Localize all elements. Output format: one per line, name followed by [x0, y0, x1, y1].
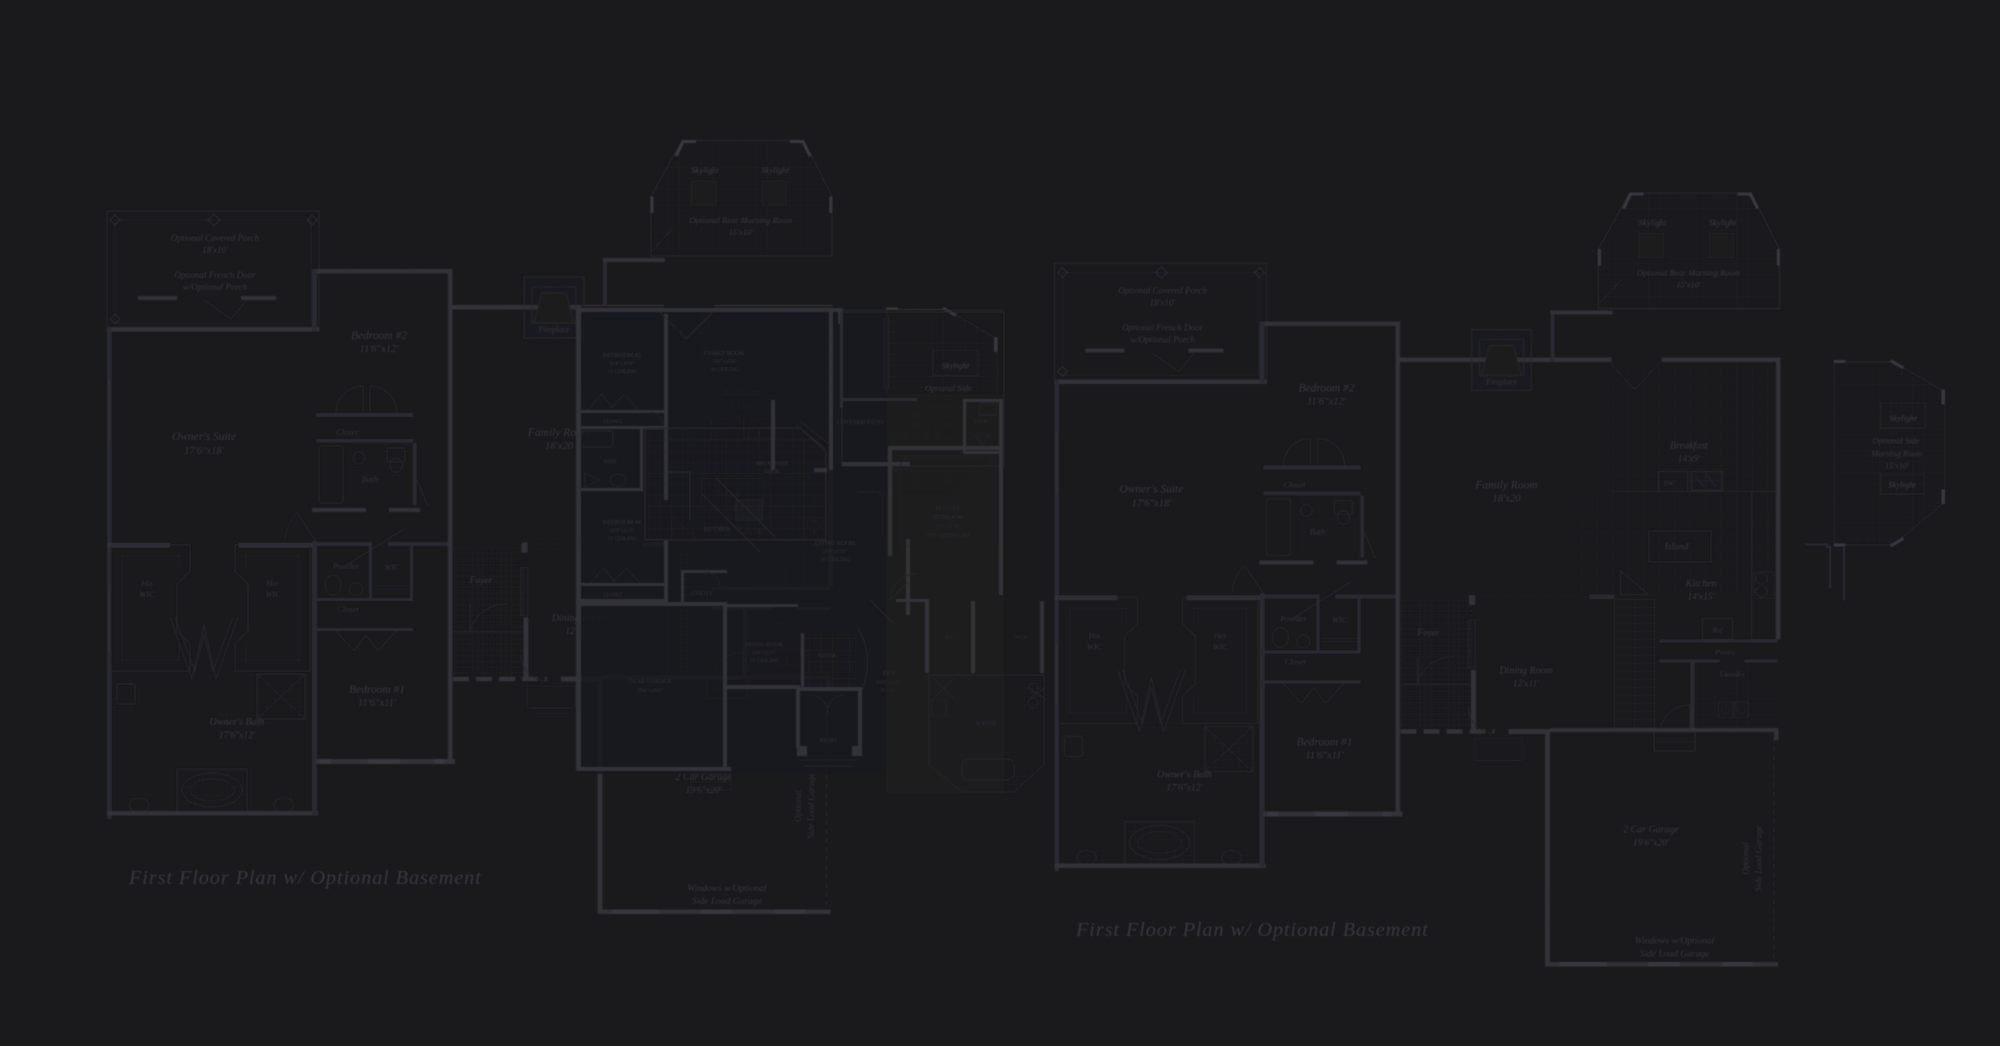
svg-text:BATH: BATH	[974, 420, 987, 425]
svg-text:FAMILY ROOM: FAMILY ROOM	[703, 351, 745, 357]
svg-text:WIC: WIC	[384, 562, 400, 572]
svg-text:LIVING ROOM: LIVING ROOM	[815, 541, 856, 547]
svg-text:Optional Rear Morning Room: Optional Rear Morning Room	[690, 215, 793, 225]
svg-text:Optional Side: Optional Side	[925, 383, 972, 393]
svg-text:11' CEILING: 11' CEILING	[607, 536, 637, 542]
svg-text:10'6"x12'0": 10'6"x12'0"	[751, 650, 777, 656]
svg-text:Side Load Garage: Side Load Garage	[692, 897, 762, 907]
svg-text:BEDROOM #4: BEDROOM #4	[603, 520, 641, 526]
svg-text:DEN: DEN	[883, 671, 896, 677]
svg-text:Owner's Suite: Owner's Suite	[172, 431, 236, 443]
svg-text:Her: Her	[265, 578, 280, 588]
svg-text:DINING ROOM: DINING ROOM	[745, 642, 783, 648]
svg-text:10' CEILING: 10' CEILING	[820, 557, 850, 563]
svg-text:Bath: Bath	[362, 474, 378, 484]
svg-text:19'6"x29'6": 19'6"x29'6"	[637, 688, 663, 694]
svg-text:Skylight: Skylight	[942, 361, 970, 371]
svg-text:Bedroom #2: Bedroom #2	[351, 330, 407, 342]
svg-text:Side Load Garage: Side Load Garage	[806, 773, 816, 839]
svg-text:W.I.C.: W.I.C.	[1015, 635, 1030, 641]
svg-text:ENTRY: ENTRY	[820, 738, 838, 744]
svg-text:Windows w/Optional: Windows w/Optional	[687, 884, 767, 894]
svg-text:10' CEILING: 10' CEILING	[709, 367, 739, 373]
svg-text:First Floor Plan w/ Optional: First Floor Plan w/ Optional Basement	[128, 867, 482, 889]
svg-text:18'x10': 18'x10'	[202, 245, 229, 255]
svg-text:Fireplace: Fireplace	[538, 325, 570, 334]
svg-text:18'x20: 18'x20	[545, 441, 574, 452]
svg-text:Skylight: Skylight	[691, 165, 719, 175]
svg-text:3 CAR GARAGE: 3 CAR GARAGE	[628, 679, 672, 685]
svg-text:BATH: BATH	[603, 460, 616, 465]
svg-text:Closet: Closet	[336, 427, 358, 437]
svg-text:11'6"x11': 11'6"x11'	[358, 698, 397, 709]
svg-text:Closet: Closet	[337, 604, 359, 614]
svg-text:CLOSET: CLOSET	[604, 420, 623, 425]
svg-text:M.BATH: M.BATH	[976, 721, 997, 727]
svg-text:COVERED PATIO: COVERED PATIO	[837, 420, 884, 426]
svg-text:11'6"x12': 11'6"x12'	[359, 344, 399, 355]
svg-text:11'0"x11'0": 11'0"x11'0"	[609, 528, 634, 534]
svg-text:11' CEILING: 11' CEILING	[607, 369, 637, 375]
svg-text:BEDROOM #3: BEDROOM #3	[603, 353, 641, 359]
svg-text:OPT. SITTING RM: OPT. SITTING RM	[926, 533, 970, 539]
svg-text:15'0"x13'0": 15'0"x13'0"	[822, 549, 848, 555]
svg-text:His: His	[140, 578, 154, 588]
svg-text:UTILITY: UTILITY	[691, 591, 713, 597]
svg-text:Owner's Bath: Owner's Bath	[210, 717, 265, 728]
svg-text:Optional French Door: Optional French Door	[174, 270, 256, 280]
svg-text:19'6"x15'6": 19'6"x15'6"	[711, 359, 737, 365]
svg-text:First Floor Plan w/ Optional: First Floor Plan w/ Optional Basement	[1075, 919, 1429, 941]
svg-text:FOYER: FOYER	[818, 653, 836, 659]
svg-text:WIC: WIC	[139, 589, 155, 599]
svg-text:W.I.C.: W.I.C.	[945, 635, 960, 641]
svg-text:10' CEILING: 10' CEILING	[749, 658, 779, 664]
svg-text:9' CLG: 9' CLG	[881, 688, 897, 694]
svg-text:Powder: Powder	[332, 561, 360, 571]
svg-text:15'x10': 15'x10'	[729, 227, 754, 237]
svg-text:CLOSET: CLOSET	[604, 593, 623, 598]
svg-text:WIC: WIC	[265, 589, 281, 599]
svg-text:MASTER: MASTER	[936, 506, 960, 512]
svg-text:Skylight: Skylight	[761, 165, 789, 175]
svg-text:10'6"x11'0": 10'6"x11'0"	[876, 680, 902, 686]
svg-text:17'6"x18': 17'6"x18'	[184, 446, 225, 457]
svg-text:BEDROOM: BEDROOM	[933, 515, 964, 521]
svg-text:11'6"x11'6": 11'6"x11'6"	[609, 361, 634, 367]
svg-text:Bedroom #1: Bedroom #1	[349, 684, 405, 696]
svg-text:w/Optional Porch: w/Optional Porch	[183, 282, 248, 292]
svg-text:17'6"x12': 17'6"x12'	[219, 731, 256, 741]
svg-text:Optional: Optional	[793, 790, 803, 823]
svg-text:Optional Covered Porch: Optional Covered Porch	[171, 233, 260, 243]
svg-text:Foyer: Foyer	[469, 576, 493, 586]
svg-text:13'6"x17'0": 13'6"x17'0"	[935, 524, 961, 530]
